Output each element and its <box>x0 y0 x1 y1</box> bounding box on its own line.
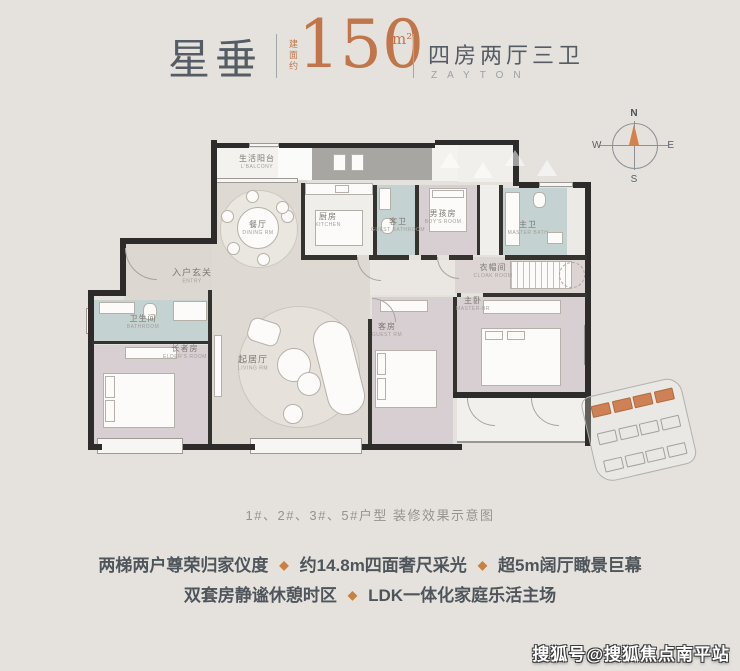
room-label-living: 起居厅 LIVING RM <box>238 355 268 372</box>
vanity <box>547 232 563 244</box>
room-label-elder-room: 长者房 ELDER'S ROOM <box>163 344 207 360</box>
vanity <box>379 188 391 210</box>
wall <box>483 293 587 297</box>
feature-item: LDK一体化家庭乐活主场 <box>368 586 556 605</box>
diamond-separator-icon: ◆ <box>478 558 487 572</box>
dining-chair <box>221 210 234 223</box>
site-row-highlighted <box>590 387 675 418</box>
plan-name-title: 星垂 <box>168 26 262 87</box>
room-label-boy-room: 男孩房 BOY'S ROOM <box>425 209 462 225</box>
building-block <box>660 415 681 431</box>
building-block-highlighted <box>633 392 654 408</box>
wall <box>183 444 255 450</box>
wall <box>585 182 591 398</box>
room-label-cloak: 衣帽间 CLOAK ROOM <box>474 263 513 279</box>
dining-chair <box>276 201 289 214</box>
wall <box>279 143 435 148</box>
room-label-bathroom: 卫生间 BATHROOM <box>127 314 160 330</box>
dining-chair <box>257 253 270 266</box>
balcony-top-window <box>249 143 279 147</box>
compass-south-label: S <box>598 174 670 185</box>
site-row <box>603 442 688 473</box>
layout-subtitle: ZAYTON <box>431 70 531 81</box>
wall <box>88 294 94 450</box>
room-label-dining: 餐厅 DINING RM <box>242 220 273 236</box>
compass-north-label: N <box>598 108 670 119</box>
room-label-kitchen: 厨房 KITCHEN <box>315 212 340 228</box>
building-block-highlighted <box>654 387 675 403</box>
pillow <box>485 331 503 340</box>
terrace-railing <box>457 441 585 443</box>
clothes-rack <box>559 262 585 288</box>
wall <box>120 238 216 244</box>
elevator-1 <box>333 154 346 171</box>
feature-item: 两梯两户尊荣归家仪度 <box>98 556 268 575</box>
building-block <box>624 452 645 468</box>
kitchen-sink <box>335 185 349 193</box>
wall <box>362 444 462 450</box>
building-block <box>597 429 618 445</box>
dining-chair <box>227 242 240 255</box>
wall <box>435 140 519 145</box>
pillow <box>432 190 464 198</box>
coffee-table-small <box>297 372 321 396</box>
elder-bay-window <box>97 438 183 454</box>
building-block <box>603 457 624 473</box>
header-divider-left <box>276 34 277 78</box>
bathtub <box>173 301 207 321</box>
floorplan-drawing: 生活阳台 L'BALCONY 餐厅 DINING RM 厨房 KITCHEN 客… <box>85 140 597 458</box>
pillow <box>105 376 115 398</box>
watermark-triangle <box>473 162 493 178</box>
wall <box>301 255 357 260</box>
feature-lines: 两梯两户尊荣归家仪度◆约14.8m四面奢尺采光◆超5m阔厅瞰景巨幕 双套房静谧休… <box>0 551 740 611</box>
wall <box>211 140 217 244</box>
wall <box>505 255 587 260</box>
suite-corridor <box>480 185 499 255</box>
room-label-guest-bath: 客卫 GUEST BATHROOM <box>371 217 425 233</box>
master-bath-fixture-strip <box>567 188 585 255</box>
pillow <box>377 378 386 400</box>
unit-caption: 1#、2#、3#、5#户型 装修效果示意图 <box>0 505 740 524</box>
pillow <box>507 331 525 340</box>
watermark-triangle <box>440 152 460 168</box>
wall <box>213 143 249 148</box>
wall <box>477 185 480 255</box>
room-label-master-bedroom: 主卧 MASTER-BR <box>456 296 490 312</box>
feature-item: 超5m阔厅瞰景巨幕 <box>498 556 642 575</box>
watermark-triangle <box>505 150 525 166</box>
room-label-entry: 入户玄关 ENTRY <box>172 268 212 285</box>
building-block-highlighted <box>612 397 633 413</box>
stool <box>283 404 303 424</box>
header-divider-right <box>413 34 414 78</box>
elevator-2 <box>351 154 364 171</box>
pillow <box>377 353 386 375</box>
bathtub <box>505 192 520 246</box>
shaft-hatch <box>278 147 312 180</box>
building-block-highlighted <box>590 402 611 418</box>
wall <box>519 182 539 188</box>
diamond-separator-icon: ◆ <box>348 588 357 602</box>
layout-title: 四房两厅三卫 <box>428 38 584 70</box>
master-bench <box>483 300 561 314</box>
pillow <box>105 400 115 422</box>
wall <box>421 255 437 260</box>
bathroom-vanity <box>99 302 135 314</box>
building-block <box>618 424 639 440</box>
feature-line-1: 两梯两户尊荣归家仪度◆约14.8m四面奢尺采光◆超5m阔厅瞰景巨幕 <box>0 551 740 581</box>
balcony-window <box>216 178 298 183</box>
tv-console <box>214 335 222 397</box>
room-label-balcony: 生活阳台 L'BALCONY <box>239 154 275 170</box>
wall <box>499 185 503 255</box>
toilet <box>533 192 546 208</box>
diamond-separator-icon: ◆ <box>279 558 288 572</box>
wall <box>88 444 102 450</box>
dining-chair <box>246 190 259 203</box>
feature-item: 双套房静谧休憩时区 <box>184 586 337 605</box>
watermark-text: 搜狐号@搜狐焦点南平站 <box>532 640 730 665</box>
compass-north-needle-icon <box>629 124 639 145</box>
watermark-triangle <box>537 160 557 176</box>
building-block <box>666 442 687 458</box>
building-block <box>639 420 660 436</box>
site-row <box>597 415 682 446</box>
public-corridor <box>312 147 432 180</box>
compass-rose-icon: N W E S <box>598 108 670 190</box>
room-label-master-bath: 主卫 MASTER BATH <box>508 220 549 236</box>
feature-line-2: 双套房静谧休憩时区◆LDK一体化家庭乐活主场 <box>0 581 740 611</box>
master-bath-window <box>539 182 573 187</box>
compass-east-label: E <box>667 140 674 151</box>
wall <box>208 290 212 444</box>
area-unit: m² <box>392 30 412 48</box>
building-block <box>645 447 666 463</box>
site-plan-inset <box>579 376 698 485</box>
room-label-guest-room: 客房 GUEST RM <box>372 322 402 338</box>
feature-item: 约14.8m四面奢尺采光 <box>300 556 467 575</box>
living-bay-window <box>250 438 362 454</box>
